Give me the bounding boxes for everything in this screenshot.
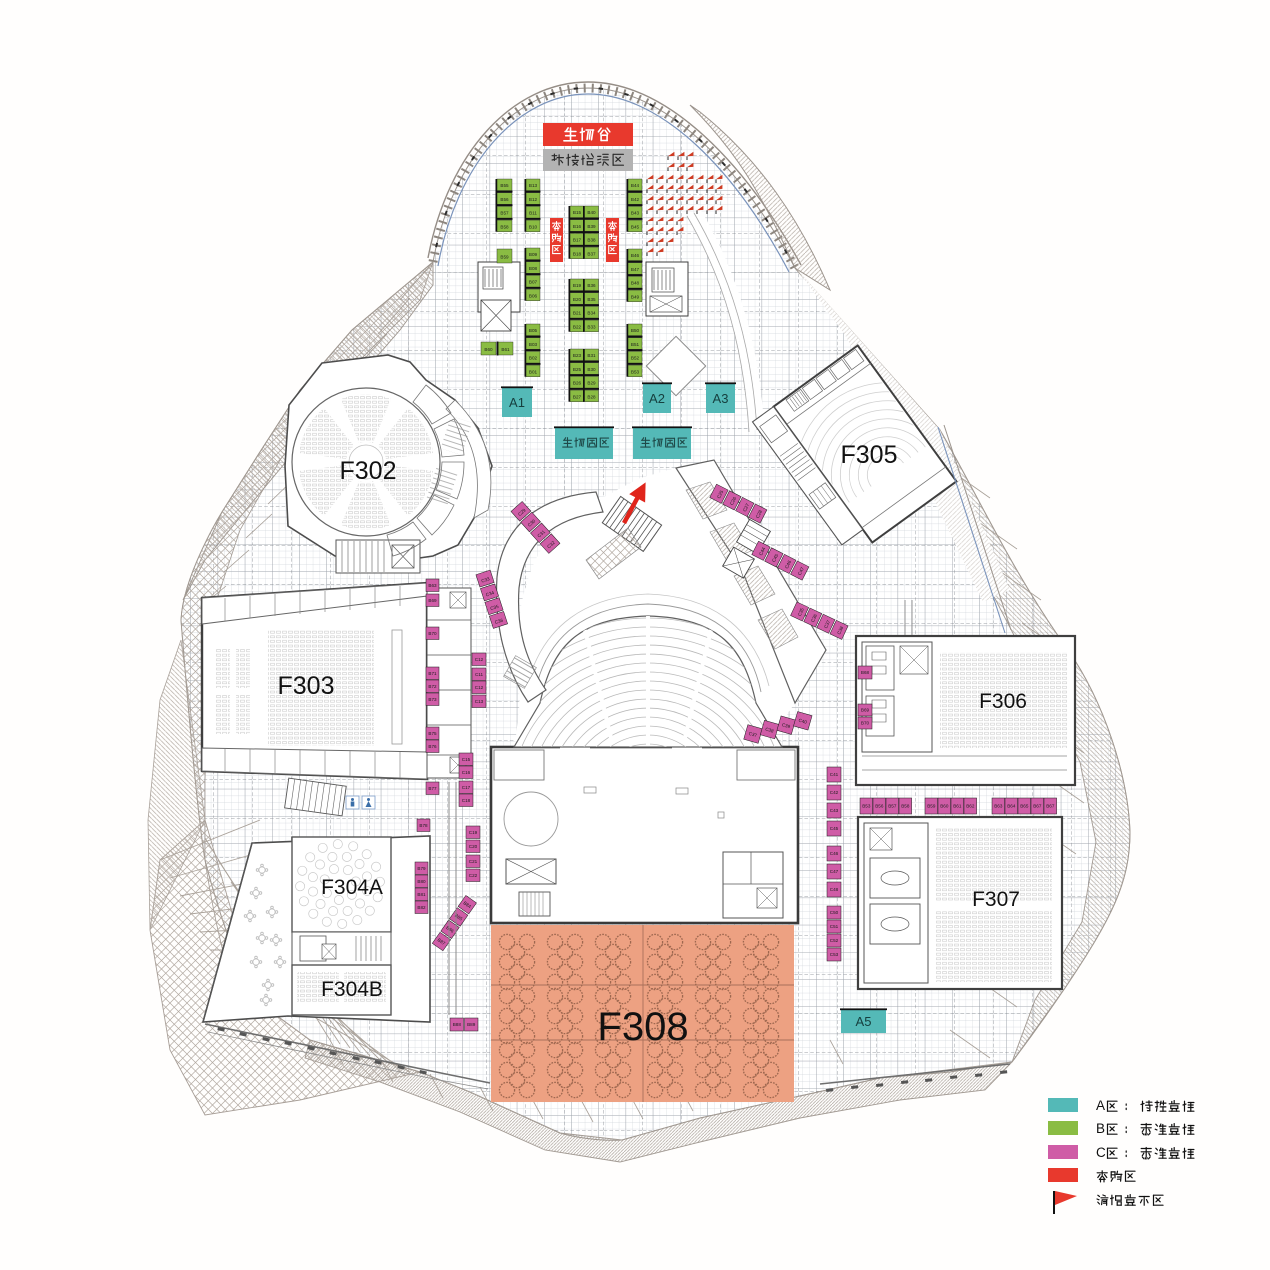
svg-text:B69: B69 bbox=[428, 598, 437, 603]
svg-text:B67: B67 bbox=[1033, 804, 1042, 809]
svg-text:F304B: F304B bbox=[321, 978, 383, 1001]
svg-text:B62: B62 bbox=[966, 804, 975, 809]
svg-text:B02: B02 bbox=[529, 356, 538, 361]
svg-text:B30: B30 bbox=[587, 367, 596, 372]
svg-text:C22: C22 bbox=[469, 873, 478, 878]
svg-text:B88: B88 bbox=[453, 1022, 462, 1027]
svg-text:B75: B75 bbox=[428, 731, 437, 736]
svg-text:B59: B59 bbox=[927, 804, 936, 809]
svg-text:B25: B25 bbox=[573, 367, 582, 372]
svg-text:B15: B15 bbox=[573, 210, 582, 215]
svg-text:B70: B70 bbox=[428, 631, 437, 636]
svg-text:B63: B63 bbox=[428, 583, 437, 588]
svg-text:B82: B82 bbox=[417, 905, 426, 910]
svg-text:B05: B05 bbox=[529, 328, 538, 333]
svg-text:B81: B81 bbox=[417, 892, 426, 897]
svg-text:B58: B58 bbox=[901, 804, 910, 809]
svg-text:B11: B11 bbox=[529, 211, 537, 216]
svg-text:A2: A2 bbox=[649, 391, 665, 406]
svg-text:B70: B70 bbox=[861, 721, 870, 726]
svg-text:B17: B17 bbox=[573, 238, 582, 243]
svg-text:B77: B77 bbox=[428, 786, 437, 791]
svg-text:B22: B22 bbox=[573, 324, 582, 329]
svg-text:C15: C15 bbox=[462, 757, 471, 762]
svg-text:B61: B61 bbox=[953, 804, 962, 809]
svg-text:B57: B57 bbox=[500, 211, 509, 216]
svg-text:C: C bbox=[1096, 1145, 1106, 1160]
svg-text:B16: B16 bbox=[573, 224, 582, 229]
svg-text:C45: C45 bbox=[830, 826, 839, 831]
svg-text:B52: B52 bbox=[631, 356, 640, 361]
svg-text:B26: B26 bbox=[573, 381, 582, 386]
svg-text:C53: C53 bbox=[830, 952, 839, 957]
svg-text:B69: B69 bbox=[861, 708, 870, 713]
svg-text:C16: C16 bbox=[462, 770, 471, 775]
svg-text:F303: F303 bbox=[278, 672, 335, 700]
svg-text:B29: B29 bbox=[587, 381, 596, 386]
svg-text:B23: B23 bbox=[573, 353, 582, 358]
svg-text:B60: B60 bbox=[940, 804, 949, 809]
svg-text:B49: B49 bbox=[631, 294, 640, 299]
svg-text:F305: F305 bbox=[841, 441, 898, 469]
svg-text:B21: B21 bbox=[573, 311, 582, 316]
svg-text:A1: A1 bbox=[509, 395, 525, 410]
svg-text:B20: B20 bbox=[573, 297, 582, 302]
svg-text:C46: C46 bbox=[830, 851, 839, 856]
svg-text:B72: B72 bbox=[428, 684, 437, 689]
svg-text:B13: B13 bbox=[529, 183, 538, 188]
svg-text:C43: C43 bbox=[830, 808, 839, 813]
svg-text:B39: B39 bbox=[587, 224, 596, 229]
svg-text:B53: B53 bbox=[631, 369, 640, 374]
svg-text:C11: C11 bbox=[475, 672, 484, 677]
svg-text:B61: B61 bbox=[501, 347, 510, 352]
svg-text:B45: B45 bbox=[631, 224, 640, 229]
svg-text:B03: B03 bbox=[529, 342, 538, 347]
svg-text:C13: C13 bbox=[475, 699, 484, 704]
svg-text:B59: B59 bbox=[500, 255, 509, 260]
svg-text:B33: B33 bbox=[587, 324, 596, 329]
svg-text:B76: B76 bbox=[428, 744, 437, 749]
svg-text:B56: B56 bbox=[875, 804, 884, 809]
svg-text:B71: B71 bbox=[428, 671, 437, 676]
svg-text:B47: B47 bbox=[631, 267, 640, 272]
svg-text:C12: C12 bbox=[475, 685, 484, 690]
svg-text:B65: B65 bbox=[1020, 804, 1029, 809]
svg-text:B38: B38 bbox=[587, 238, 596, 243]
svg-text:B44: B44 bbox=[631, 183, 640, 188]
svg-text:F304A: F304A bbox=[321, 876, 383, 899]
svg-text:B79: B79 bbox=[417, 866, 426, 871]
svg-text:B34: B34 bbox=[587, 311, 596, 316]
svg-text:C19: C19 bbox=[469, 830, 478, 835]
svg-text:B68: B68 bbox=[861, 670, 870, 675]
svg-text:B28: B28 bbox=[587, 394, 596, 399]
svg-text:B36: B36 bbox=[587, 283, 596, 288]
svg-text:B07: B07 bbox=[529, 280, 538, 285]
svg-text:B67: B67 bbox=[1046, 804, 1055, 809]
svg-text:B89: B89 bbox=[467, 1022, 476, 1027]
svg-text:B48: B48 bbox=[631, 281, 640, 286]
svg-text:C17: C17 bbox=[462, 785, 471, 790]
svg-text:B46: B46 bbox=[631, 253, 640, 258]
svg-text:B40: B40 bbox=[587, 210, 596, 215]
svg-text:B27: B27 bbox=[573, 394, 582, 399]
svg-text:B10: B10 bbox=[529, 224, 538, 229]
svg-text:B53: B53 bbox=[862, 804, 871, 809]
svg-text:B56: B56 bbox=[500, 197, 509, 202]
svg-text:B64: B64 bbox=[1007, 804, 1016, 809]
svg-text:B78: B78 bbox=[419, 823, 428, 828]
svg-text:B57: B57 bbox=[888, 804, 897, 809]
svg-text:B43: B43 bbox=[631, 211, 640, 216]
svg-text:B31: B31 bbox=[587, 353, 596, 358]
svg-text:C50: C50 bbox=[830, 910, 839, 915]
svg-text:B01: B01 bbox=[529, 369, 538, 374]
svg-text:F308: F308 bbox=[597, 1005, 688, 1049]
svg-text:B06: B06 bbox=[529, 293, 538, 298]
svg-text:B19: B19 bbox=[573, 283, 582, 288]
svg-text:B51: B51 bbox=[631, 342, 640, 347]
svg-text:C51: C51 bbox=[830, 924, 839, 929]
svg-text:B12: B12 bbox=[529, 197, 538, 202]
svg-text:B58: B58 bbox=[500, 224, 509, 229]
svg-text:F302: F302 bbox=[340, 457, 397, 485]
svg-text:C42: C42 bbox=[830, 790, 839, 795]
svg-text:B18: B18 bbox=[573, 251, 582, 256]
svg-text:B55: B55 bbox=[500, 183, 509, 188]
svg-text:B80: B80 bbox=[417, 879, 426, 884]
svg-text:C21: C21 bbox=[469, 859, 478, 864]
svg-text:B50: B50 bbox=[631, 328, 640, 333]
svg-text:A3: A3 bbox=[713, 391, 729, 406]
svg-text:C18: C18 bbox=[462, 798, 471, 803]
svg-text:B73: B73 bbox=[428, 697, 437, 702]
svg-text:C47: C47 bbox=[830, 869, 839, 874]
svg-text:C48: C48 bbox=[830, 887, 839, 892]
svg-text:F307: F307 bbox=[972, 888, 1020, 911]
svg-text:B37: B37 bbox=[587, 251, 596, 256]
svg-text:B42: B42 bbox=[631, 197, 640, 202]
svg-text:A: A bbox=[1096, 1098, 1105, 1113]
svg-text:C52: C52 bbox=[830, 938, 839, 943]
svg-text:B35: B35 bbox=[587, 297, 596, 302]
svg-text:C12: C12 bbox=[475, 657, 484, 662]
svg-text:B: B bbox=[1096, 1121, 1105, 1136]
svg-text:F306: F306 bbox=[979, 690, 1027, 713]
svg-text:A5: A5 bbox=[856, 1014, 872, 1029]
svg-text:B63: B63 bbox=[994, 804, 1003, 809]
svg-text:C20: C20 bbox=[469, 844, 478, 849]
svg-text:B09: B09 bbox=[529, 252, 538, 257]
svg-text:C41: C41 bbox=[830, 772, 839, 777]
svg-text:B08: B08 bbox=[529, 266, 538, 271]
svg-text:B60: B60 bbox=[484, 347, 493, 352]
